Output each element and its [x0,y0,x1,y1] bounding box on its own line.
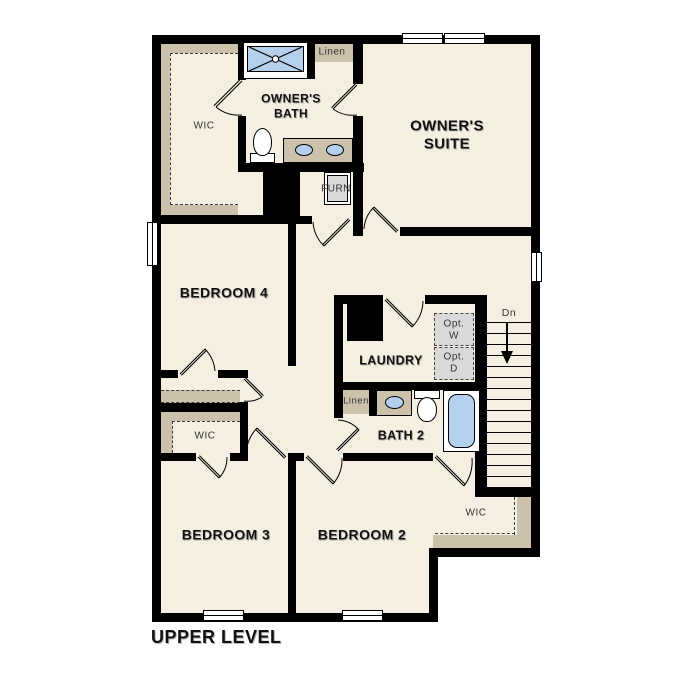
label-stairs-down: Dn [502,307,516,319]
bath2-toilet-bowl [417,397,437,422]
wall [343,453,433,461]
wic-bottom-shelving-bottom [433,535,517,548]
wall [334,295,383,304]
room-label-laundry: LAUNDRY [336,353,446,368]
wall [369,390,376,416]
floor-plan-canvas: WIC OWNER'S BATH Linen OWNER'S SUITE FUR… [0,0,687,687]
chase [263,163,300,224]
wall [334,382,487,390]
wall [296,216,312,224]
stair-treads [487,322,531,490]
wall [400,227,531,236]
stair-arrow-head [501,351,513,364]
room-label-wic-top: WIC [194,120,215,132]
owners-bath-toilet-bowl [253,128,272,156]
room-label-linen-bath2: Linen [343,397,369,408]
room-label-owners-suite: OWNER'S SUITE [392,118,502,155]
wall [531,35,540,557]
wall [238,116,246,165]
wall [429,548,540,557]
owners-bath-sink-left [295,144,313,156]
wic-bottom-dash-horizontal [435,533,515,535]
window-bedroom3 [203,610,244,621]
window-owners-suite-left [402,33,443,44]
exterior-notch [438,557,540,622]
room-label-owners-bath: OWNER'S BATH [251,91,331,120]
window-bedroom4 [147,222,158,266]
wall [152,403,248,412]
label-optional-dryer: Opt. D [439,352,469,375]
room-label-bedroom4: BEDROOM 4 [149,284,299,301]
level-title: UPPER LEVEL [151,627,282,648]
room-label-bedroom3: BEDROOM 3 [151,526,301,543]
wall [353,116,363,236]
wall [152,215,265,224]
bath2-tub [448,394,475,448]
wall [218,370,248,378]
bath2-sink [385,396,404,409]
room-label-bedroom2: BEDROOM 2 [287,526,437,543]
shower-pan [247,46,304,72]
stair-arrow-shaft [506,322,508,352]
room-label-linen-top: Linen [319,46,346,58]
wall [475,488,532,497]
window-bedroom2 [342,610,383,621]
wall [230,453,243,461]
room-label-wic-left: WIC [195,430,216,442]
wic-bottom-dash-vertical [514,497,516,535]
wall [353,39,363,84]
wall [307,39,315,79]
wic-bottom-shelving-right [517,495,531,548]
wall [296,453,304,461]
bed4-closet-shelf [161,390,240,403]
window-hall [531,252,542,282]
room-label-wic-bottom: WIC [466,507,487,519]
label-optional-washer: Opt. W [439,319,469,342]
wall [429,548,438,622]
wall [152,370,178,378]
bed4-closet-floor [161,378,240,390]
window-owners-suite-right [444,33,485,44]
chase [347,304,383,341]
wall [152,453,196,461]
room-label-furnace: FURN [321,183,351,195]
wall [238,163,364,172]
room-label-bath2: BATH 2 [361,428,441,443]
owners-bath-sink-right [326,144,344,156]
